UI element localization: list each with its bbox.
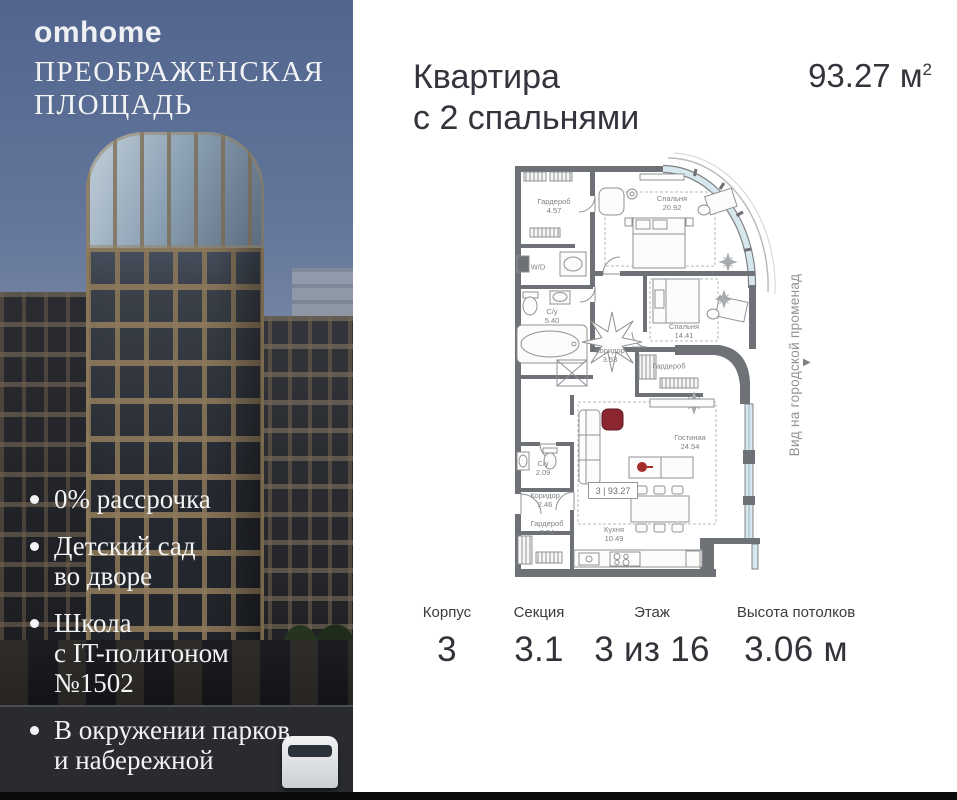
room-label-wardrobe-lower: Гардероб3.94 [531, 519, 564, 537]
apartment-area: 93.27 м2 [690, 57, 932, 95]
feature-item-parks: В окружении парков и набережной [30, 715, 340, 775]
room-label-bathroom-small: С/у2.09 [536, 459, 551, 477]
bullet-dot-icon [30, 495, 39, 504]
room-label-wardrobe-mid: Гардероб [653, 362, 686, 371]
building-photo: omhome ПРЕОБРАЖЕНСКАЯ ПЛОЩАДЬ 0% рассроч… [0, 0, 353, 793]
room-label-living: Гостиная24.54 [674, 433, 705, 451]
room-label-bathroom-main: С/у5.40 [545, 307, 560, 325]
stat-building: Корпус 3 [423, 604, 471, 670]
bullet-dot-icon [30, 619, 39, 628]
bullet-dot-icon [30, 542, 39, 551]
stat-section: Секция 3.1 [514, 604, 565, 670]
view-direction-arrow-icon: ▶ [803, 357, 811, 368]
room-label-bedroom-2: Спальня14.41 [669, 322, 699, 340]
feature-list: 0% рассрочка Детский сад во дворе Школа … [30, 484, 340, 792]
stat-floor: Этаж 3 из 16 [594, 604, 710, 670]
tower-glass-crown [86, 132, 264, 248]
feature-item-installment: 0% рассрочка [30, 484, 340, 514]
room-label-wd: W/D [531, 263, 546, 272]
brand-logo: omhome [34, 16, 162, 50]
listing-card: omhome ПРЕОБРАЖЕНСКАЯ ПЛОЩАДЬ 0% рассроч… [0, 0, 957, 800]
room-label-bedroom-1: Спальня20.92 [657, 194, 687, 212]
room-label-corridor-main: Коридор3.53 [595, 346, 625, 364]
stat-ceiling-height: Высота потолков 3.06 м [737, 604, 855, 670]
feature-item-school: Школа с IT-полигоном №1502 [30, 608, 340, 698]
bullet-dot-icon [30, 726, 39, 735]
right-window-band [743, 404, 758, 569]
unit-area-badge: 3 | 93.27 [588, 482, 638, 499]
apartment-title: Квартира с 2 спальнями [413, 57, 639, 139]
room-label-wardrobe-top: Гардероб4.57 [538, 197, 571, 215]
feature-item-kindergarten: Детский сад во дворе [30, 531, 340, 591]
room-label-kitchen: Кухня10.49 [604, 525, 624, 543]
bottom-bar [0, 792, 957, 800]
project-title: ПРЕОБРАЖЕНСКАЯ ПЛОЩАДЬ [34, 56, 324, 122]
room-label-corridor-small: Коридор2.46 [530, 491, 560, 509]
